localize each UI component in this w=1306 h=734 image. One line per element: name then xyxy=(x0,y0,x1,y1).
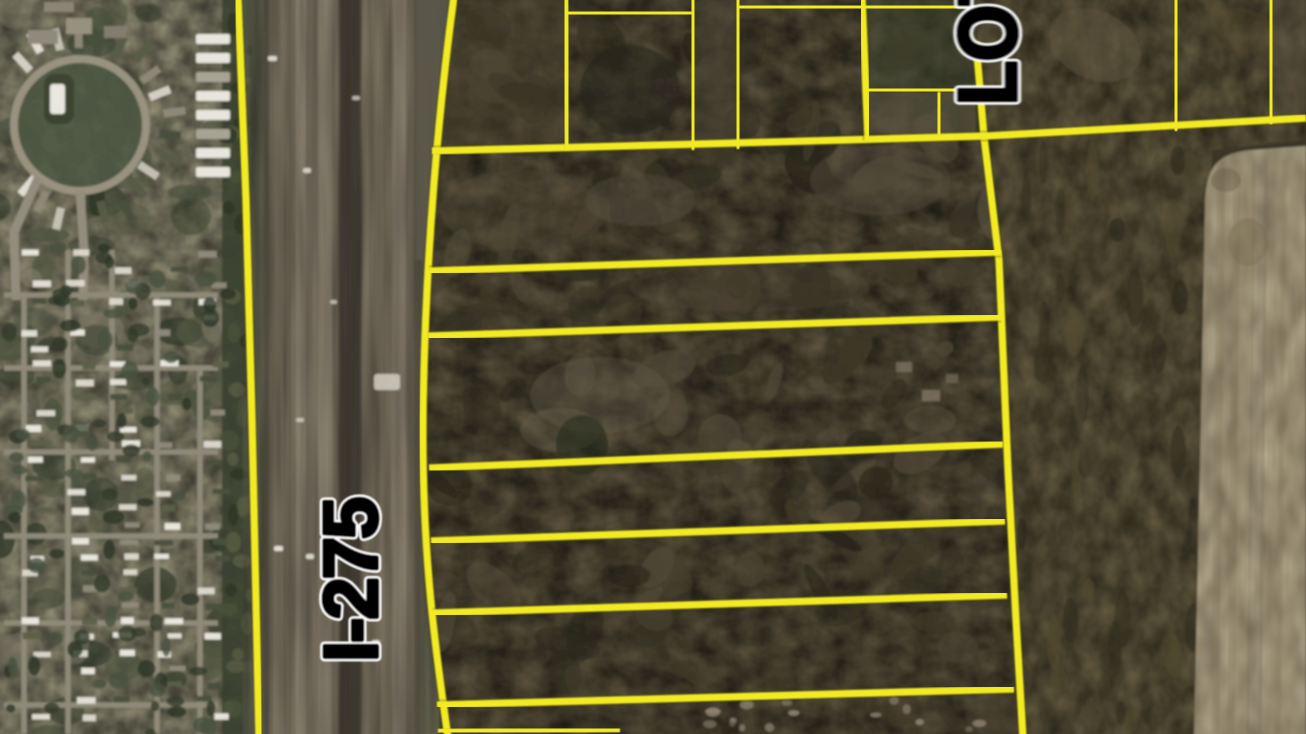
svg-text:I-275: I-275 xyxy=(309,498,394,662)
svg-text:LOT: LOT xyxy=(942,0,1034,105)
